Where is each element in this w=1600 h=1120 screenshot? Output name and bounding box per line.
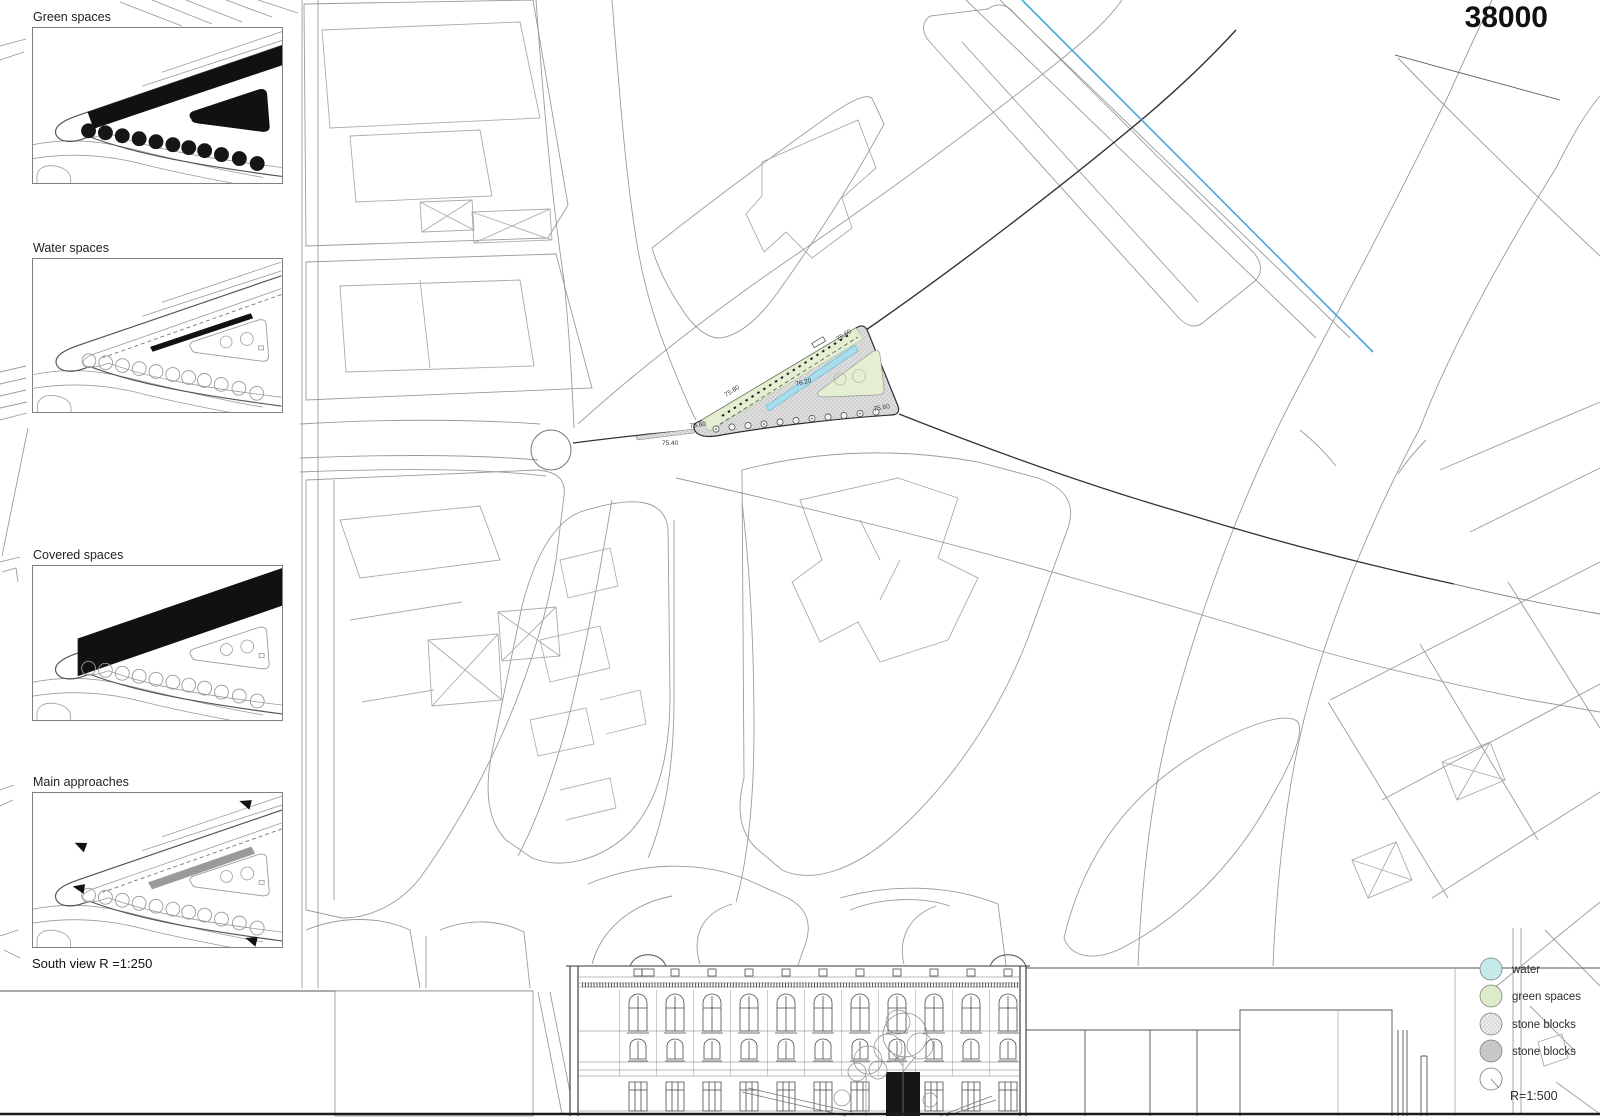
elevation-block-left <box>335 991 533 1116</box>
river-line <box>1022 0 1373 352</box>
legend-scale: R=1:500 <box>1510 1089 1558 1103</box>
plaza: 75.60 76.20 75.80 75.60 75.60 75.40 <box>636 326 899 447</box>
legend: water green spaces stone blocks stone bl… <box>1480 958 1581 1103</box>
legend-label-stone-light: stone blocks <box>1512 1019 1576 1031</box>
legend-swatch-green-spaces <box>1480 985 1502 1007</box>
legend-label-water: water <box>1511 964 1540 976</box>
legend-swatch-water <box>1480 958 1502 980</box>
site-plan: 75.60 76.20 75.80 75.60 75.60 75.40 <box>0 0 1600 1120</box>
map-streets <box>0 0 1600 1114</box>
facade <box>566 955 1030 1116</box>
elevation-mid: 75.80 <box>723 384 741 399</box>
sheet-number: 38000 <box>1465 1 1548 35</box>
roundabout <box>531 430 571 470</box>
legend-label-stone-dark: stone blocks <box>1512 1046 1576 1058</box>
south-elevation <box>0 955 1600 1116</box>
main-road-edges <box>573 30 1600 614</box>
elevation-road: 75.40 <box>662 440 679 447</box>
legend-swatch-stone-dark <box>1480 1040 1502 1062</box>
drawing-sheet: 75.60 76.20 75.80 75.60 75.60 75.40 <box>0 0 1600 1120</box>
legend-label-green-spaces: green spaces <box>1512 991 1581 1003</box>
north-indicator-icon <box>1480 1068 1502 1090</box>
